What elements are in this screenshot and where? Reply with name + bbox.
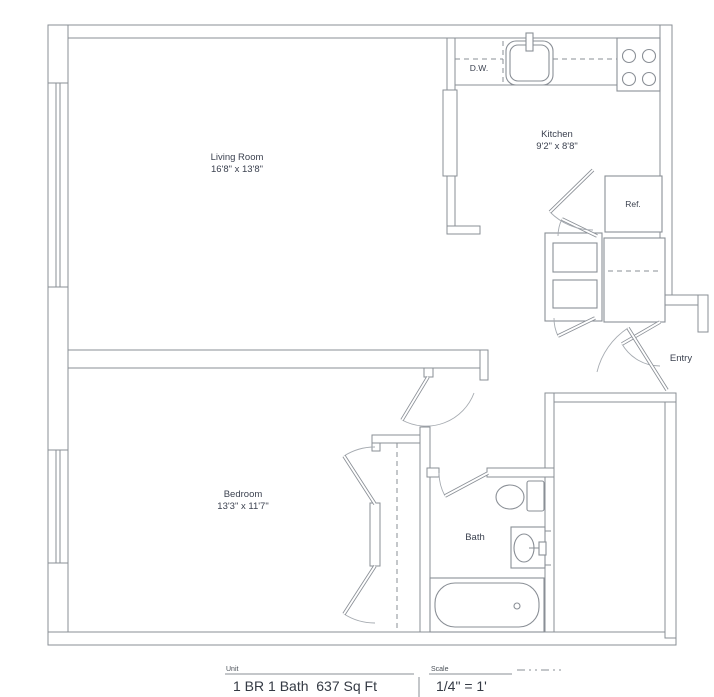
bedroom-closet-door-top	[344, 447, 375, 504]
wall-kitchen-left-upper	[447, 38, 455, 90]
kitchen-label: Kitchen	[541, 129, 573, 140]
kitchen-dims: 9'2" x 8'8"	[536, 141, 578, 152]
wall-bath-right	[545, 393, 554, 632]
bath-door	[439, 473, 488, 496]
linen-closet-shelf-bottom	[553, 280, 597, 308]
entry-door	[597, 328, 667, 390]
bedroom-label: Bedroom	[224, 489, 263, 500]
kitchen-door	[550, 170, 593, 230]
refrigerator-label: Ref.	[625, 199, 641, 209]
wall-bedroom-closet-right	[420, 427, 430, 632]
wall-divider-return	[480, 350, 488, 380]
wall-bath-top-left	[427, 468, 439, 477]
legend: Unit 1 BR 1 Bath 637 Sq Ft Scale 1/4" = …	[225, 666, 561, 697]
wall-left	[48, 25, 68, 645]
bathroom-sink-icon	[511, 527, 551, 568]
legend-unit-value: 1 BR 1 Bath 637 Sq Ft	[233, 678, 377, 694]
bathroom-fixtures	[430, 481, 551, 632]
wall-bedroom-closet-post	[370, 503, 380, 566]
legend-unit-label: Unit	[226, 666, 239, 673]
kitchen-sink-icon	[506, 33, 553, 85]
linen-closet-shelf-top	[553, 243, 597, 272]
living-room-dims: 16'8" x 13'8"	[211, 164, 263, 175]
coat-closet	[604, 238, 665, 322]
bedroom-dims: 13'3" x 11'7"	[217, 501, 268, 512]
refrigerator: Ref.	[605, 176, 662, 232]
stove-icon	[617, 38, 660, 91]
wall-kitchen-left-thick	[443, 90, 457, 176]
wall-entry-alcove-stub	[698, 295, 708, 332]
wall-kitchen-left-lower	[447, 176, 455, 226]
legend-scale-label: Scale	[431, 666, 449, 673]
living-room-label: Living Room	[211, 152, 264, 163]
wall-top	[48, 25, 672, 38]
kitchen-counter: D.W.	[455, 33, 660, 91]
bath-label: Bath	[465, 532, 485, 543]
bedroom-door	[402, 377, 474, 426]
legend-scale-value: 1/4" = 1'	[436, 678, 487, 694]
bedroom-closet-door-bottom	[344, 566, 375, 623]
floorplan-canvas: D.W. Ref.	[0, 0, 714, 697]
entry-label: Entry	[670, 353, 692, 364]
hall-closets	[545, 233, 665, 322]
wall-bath-top-right	[487, 468, 554, 477]
bedroom-door-jamb	[424, 368, 433, 377]
wall-right-lower	[665, 393, 676, 638]
bathtub-icon	[430, 578, 544, 632]
toilet-icon	[496, 481, 544, 511]
wall-kitchen-foot	[447, 226, 480, 234]
wall-hall-horizontal	[545, 393, 676, 402]
wall-living-bedroom-divider	[68, 350, 482, 368]
dishwasher-label: D.W.	[470, 63, 488, 73]
wall-bottom	[48, 632, 676, 645]
wall-bedroom-closet-top	[372, 435, 427, 443]
